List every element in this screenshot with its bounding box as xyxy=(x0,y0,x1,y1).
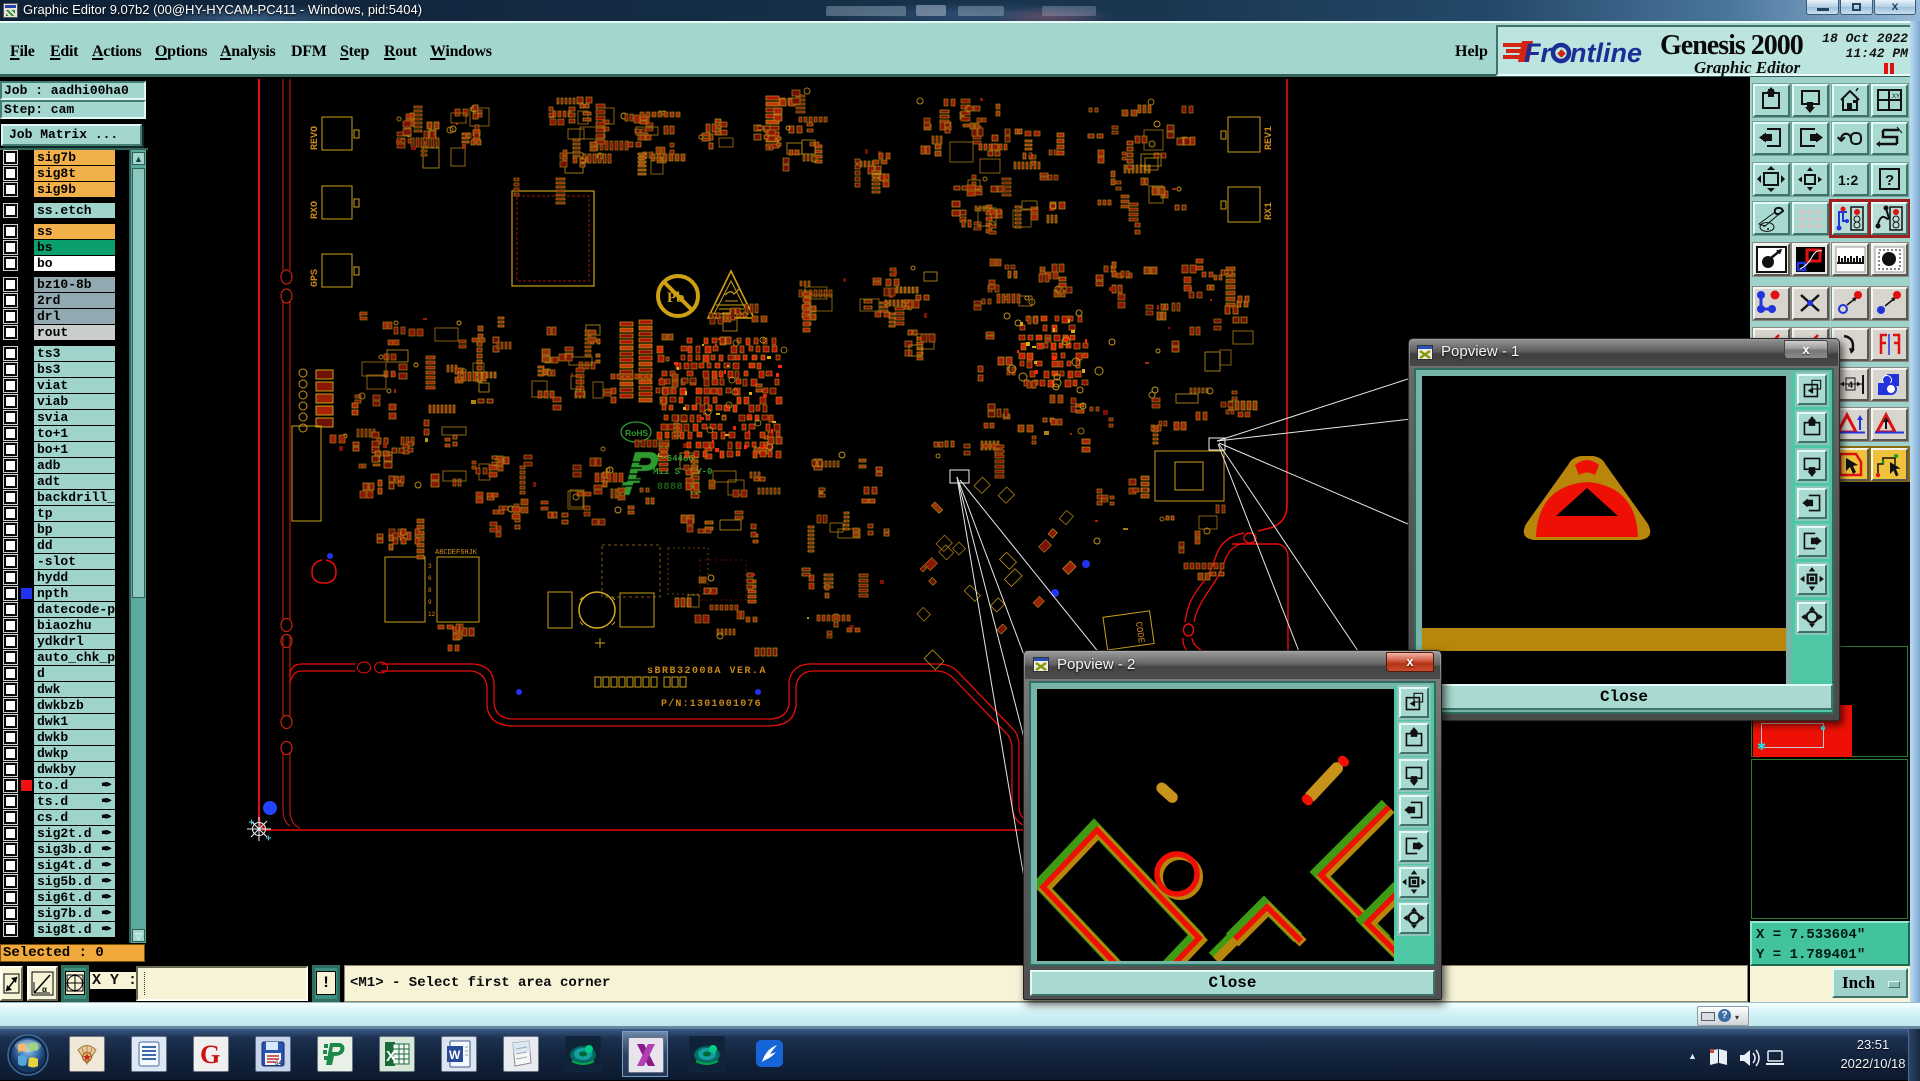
svg-text:9: 9 xyxy=(428,599,432,606)
svg-text:ntline: ntline xyxy=(1570,38,1642,68)
svg-text:8: 8 xyxy=(428,587,432,594)
svg-text:4: 4 xyxy=(1848,380,1853,390)
svg-text:GPS: GPS xyxy=(310,269,321,287)
svg-text:G: G xyxy=(200,1040,220,1069)
svg-text:REV1: REV1 xyxy=(1264,126,1275,150)
svg-text:RXO: RXO xyxy=(310,201,321,219)
svg-text:P/N:1301001076: P/N:1301001076 xyxy=(661,698,762,710)
svg-text:REVO: REVO xyxy=(310,126,321,150)
svg-text:↶: ↶ xyxy=(1836,129,1852,149)
svg-text:6: 6 xyxy=(428,575,432,582)
svg-text:ABCDEF6HJK: ABCDEF6HJK xyxy=(435,549,478,557)
svg-text:Pb: Pb xyxy=(667,290,685,306)
svg-text:sBRB32008A VER.A: sBRB32008A VER.A xyxy=(647,666,767,677)
svg-text:1:2: 1:2 xyxy=(1838,172,1858,188)
svg-text:RX1: RX1 xyxy=(1264,202,1275,220)
svg-text:?: ? xyxy=(1885,172,1894,189)
svg-text:XY: XY xyxy=(1892,94,1900,100)
svg-text:RoHS: RoHS xyxy=(625,428,648,438)
svg-text:Fr: Fr xyxy=(1524,38,1552,68)
svg-text:CODE: CODE xyxy=(1133,621,1146,644)
svg-text:8888: 8888 xyxy=(657,482,683,493)
svg-text:3: 3 xyxy=(428,563,432,570)
svg-text:W: W xyxy=(449,1048,461,1062)
svg-text:64: 64 xyxy=(275,1061,282,1067)
svg-text:12: 12 xyxy=(428,611,436,618)
svg-text:α: α xyxy=(42,985,47,994)
svg-text:X: X xyxy=(386,1048,396,1065)
